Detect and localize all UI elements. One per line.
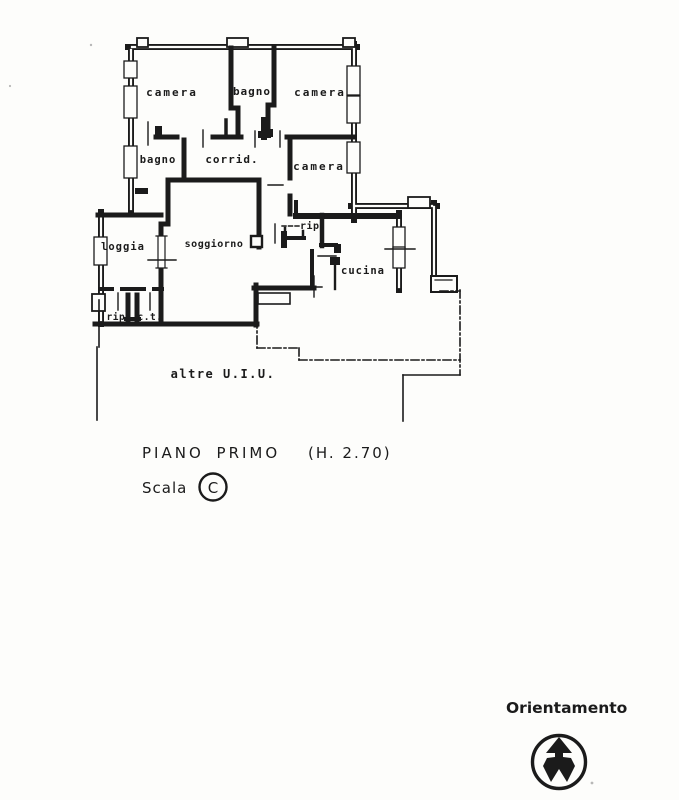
other-units-boundary xyxy=(97,290,460,421)
room-label-camera-e: camera xyxy=(293,160,345,173)
window-icon xyxy=(124,146,137,178)
scale-letter-badge: C xyxy=(200,474,227,501)
orientation-block: Orientamento xyxy=(506,699,627,789)
window-icon xyxy=(124,86,137,118)
window-icon xyxy=(347,66,360,95)
floor-height: (H. 2.70) xyxy=(308,444,392,462)
doors xyxy=(213,120,340,289)
balcony xyxy=(431,276,457,292)
door-leaf-icon xyxy=(281,231,287,248)
door-leaf-icon xyxy=(330,257,340,265)
room-label-cucina: cucina xyxy=(341,265,385,277)
caption-block: PIANO PRIMO (H. 2.70) Scala C xyxy=(142,444,392,501)
room-label-ripostiglio-sw: rip. xyxy=(107,312,132,323)
window-icon xyxy=(347,142,360,173)
orientation-label: Orientamento xyxy=(506,699,627,717)
window-icon xyxy=(393,247,405,268)
room-label-ripostiglio-e: rip. xyxy=(300,220,326,232)
room-labels: camera bagno camera bagno corrid. camera… xyxy=(101,85,385,381)
room-label-bagno-n: bagno xyxy=(233,85,271,98)
scanned-floor-plan-page: camera bagno camera bagno corrid. camera… xyxy=(0,0,679,800)
room-label-loggia: loggia xyxy=(101,241,145,253)
room-label-altre-uiu: altre U.I.U. xyxy=(171,367,276,381)
room-label-bagno-w: bagno xyxy=(140,154,177,166)
window-icon xyxy=(393,227,405,248)
french-door-icon xyxy=(156,236,167,268)
window-icon xyxy=(124,61,137,78)
room-label-centrale-termica: c.t. xyxy=(138,312,163,323)
room-label-camera-ne: camera xyxy=(294,86,346,99)
north-arrow-icon xyxy=(533,736,586,789)
scale-label: Scala xyxy=(142,479,187,497)
room-label-corridoio: corrid. xyxy=(205,153,258,166)
scale-letter: C xyxy=(208,479,218,497)
floor-plan-canvas: camera bagno camera bagno corrid. camera… xyxy=(0,0,679,800)
room-label-camera-nw: camera xyxy=(146,86,198,99)
door-frame-icon xyxy=(251,236,262,247)
room-label-soggiorno: soggiorno xyxy=(185,238,244,250)
window-icon xyxy=(347,96,360,123)
door-leaf-icon xyxy=(258,131,271,138)
floor-plan xyxy=(9,38,593,784)
floor-title: PIANO PRIMO xyxy=(142,444,280,462)
